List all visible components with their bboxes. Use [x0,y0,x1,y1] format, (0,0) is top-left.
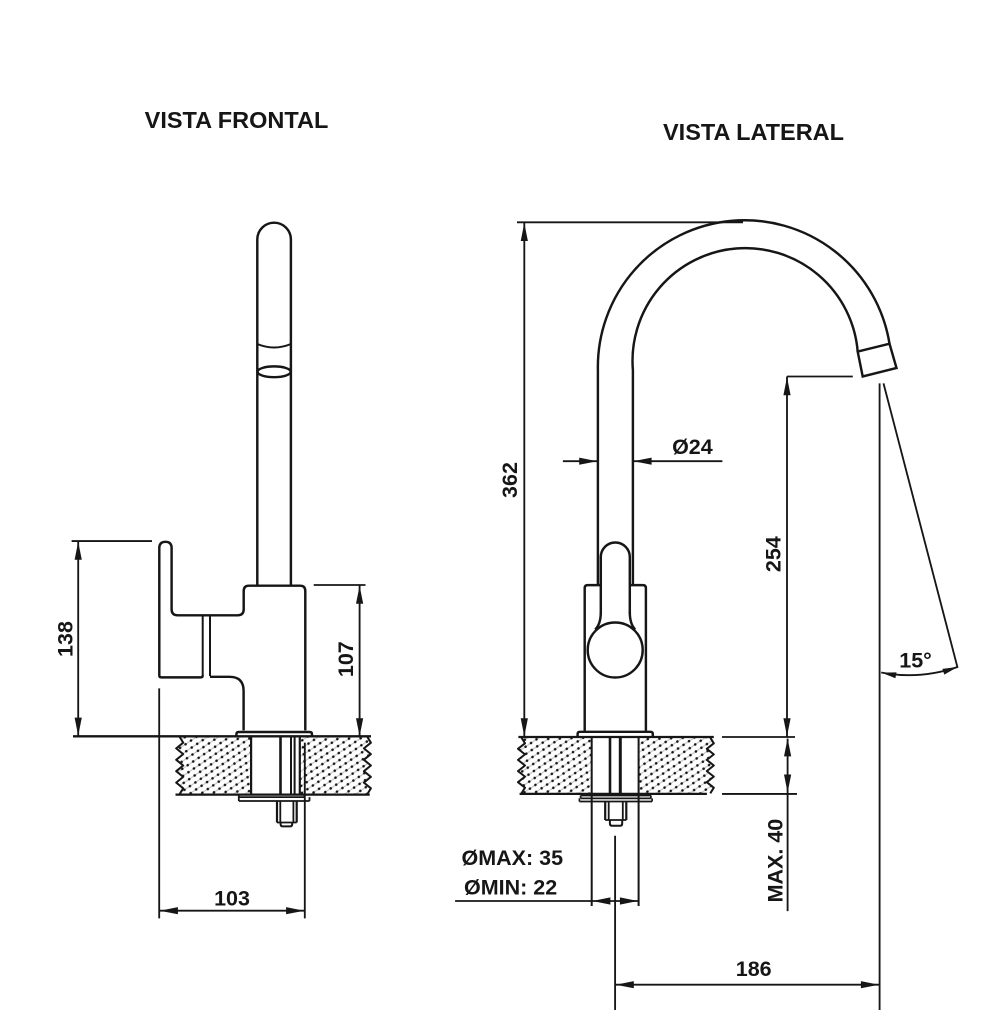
svg-text:138: 138 [54,621,78,657]
svg-text:ØMAX: 35: ØMAX: 35 [462,846,564,870]
svg-text:107: 107 [334,641,358,677]
svg-text:15°: 15° [899,649,932,673]
svg-text:Ø24: Ø24 [672,435,713,459]
svg-text:362: 362 [498,462,522,498]
svg-text:VISTA LATERAL: VISTA LATERAL [663,119,844,145]
svg-text:ØMIN: 22: ØMIN: 22 [464,876,557,900]
svg-text:254: 254 [762,536,786,572]
svg-text:MAX. 40: MAX. 40 [764,819,788,903]
svg-text:186: 186 [736,957,772,981]
svg-text:VISTA FRONTAL: VISTA FRONTAL [145,107,329,133]
svg-text:103: 103 [214,887,250,911]
